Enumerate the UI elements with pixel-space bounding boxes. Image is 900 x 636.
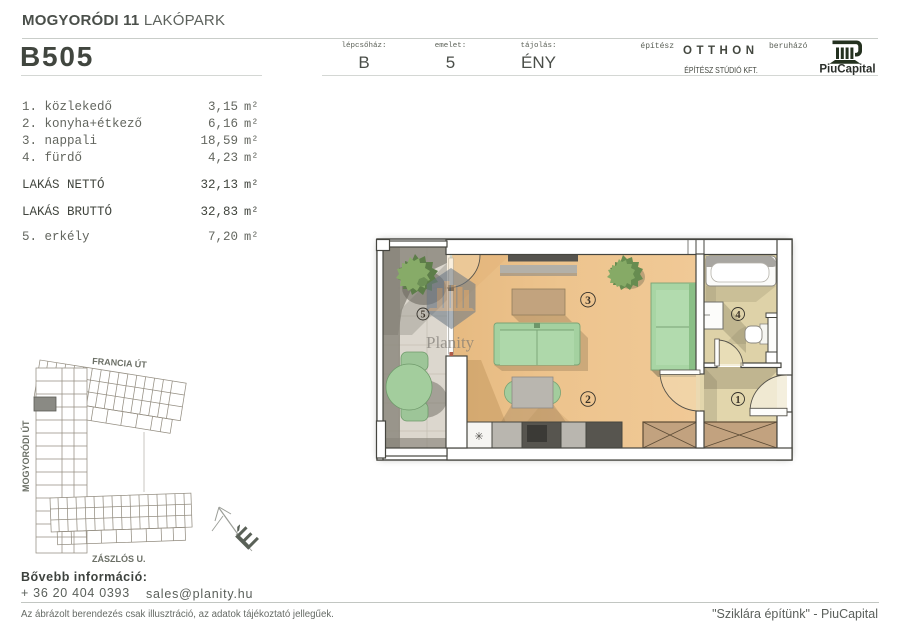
svg-text:FRANCIA ÚT: FRANCIA ÚT — [92, 355, 148, 370]
svg-text:4: 4 — [735, 310, 741, 321]
svg-text:3: 3 — [585, 295, 591, 307]
svg-text:1: 1 — [735, 395, 740, 406]
svg-text:ZÁSZLÓS U.: ZÁSZLÓS U. — [92, 553, 146, 564]
svg-text:✳: ✳ — [474, 431, 483, 443]
svg-text:MOGYORÓDI ÚT: MOGYORÓDI ÚT — [20, 420, 31, 492]
svg-text:É: É — [229, 521, 264, 556]
svg-text:2: 2 — [585, 394, 591, 406]
svg-text:Planity: Planity — [426, 333, 475, 352]
svg-text:5: 5 — [421, 310, 426, 321]
